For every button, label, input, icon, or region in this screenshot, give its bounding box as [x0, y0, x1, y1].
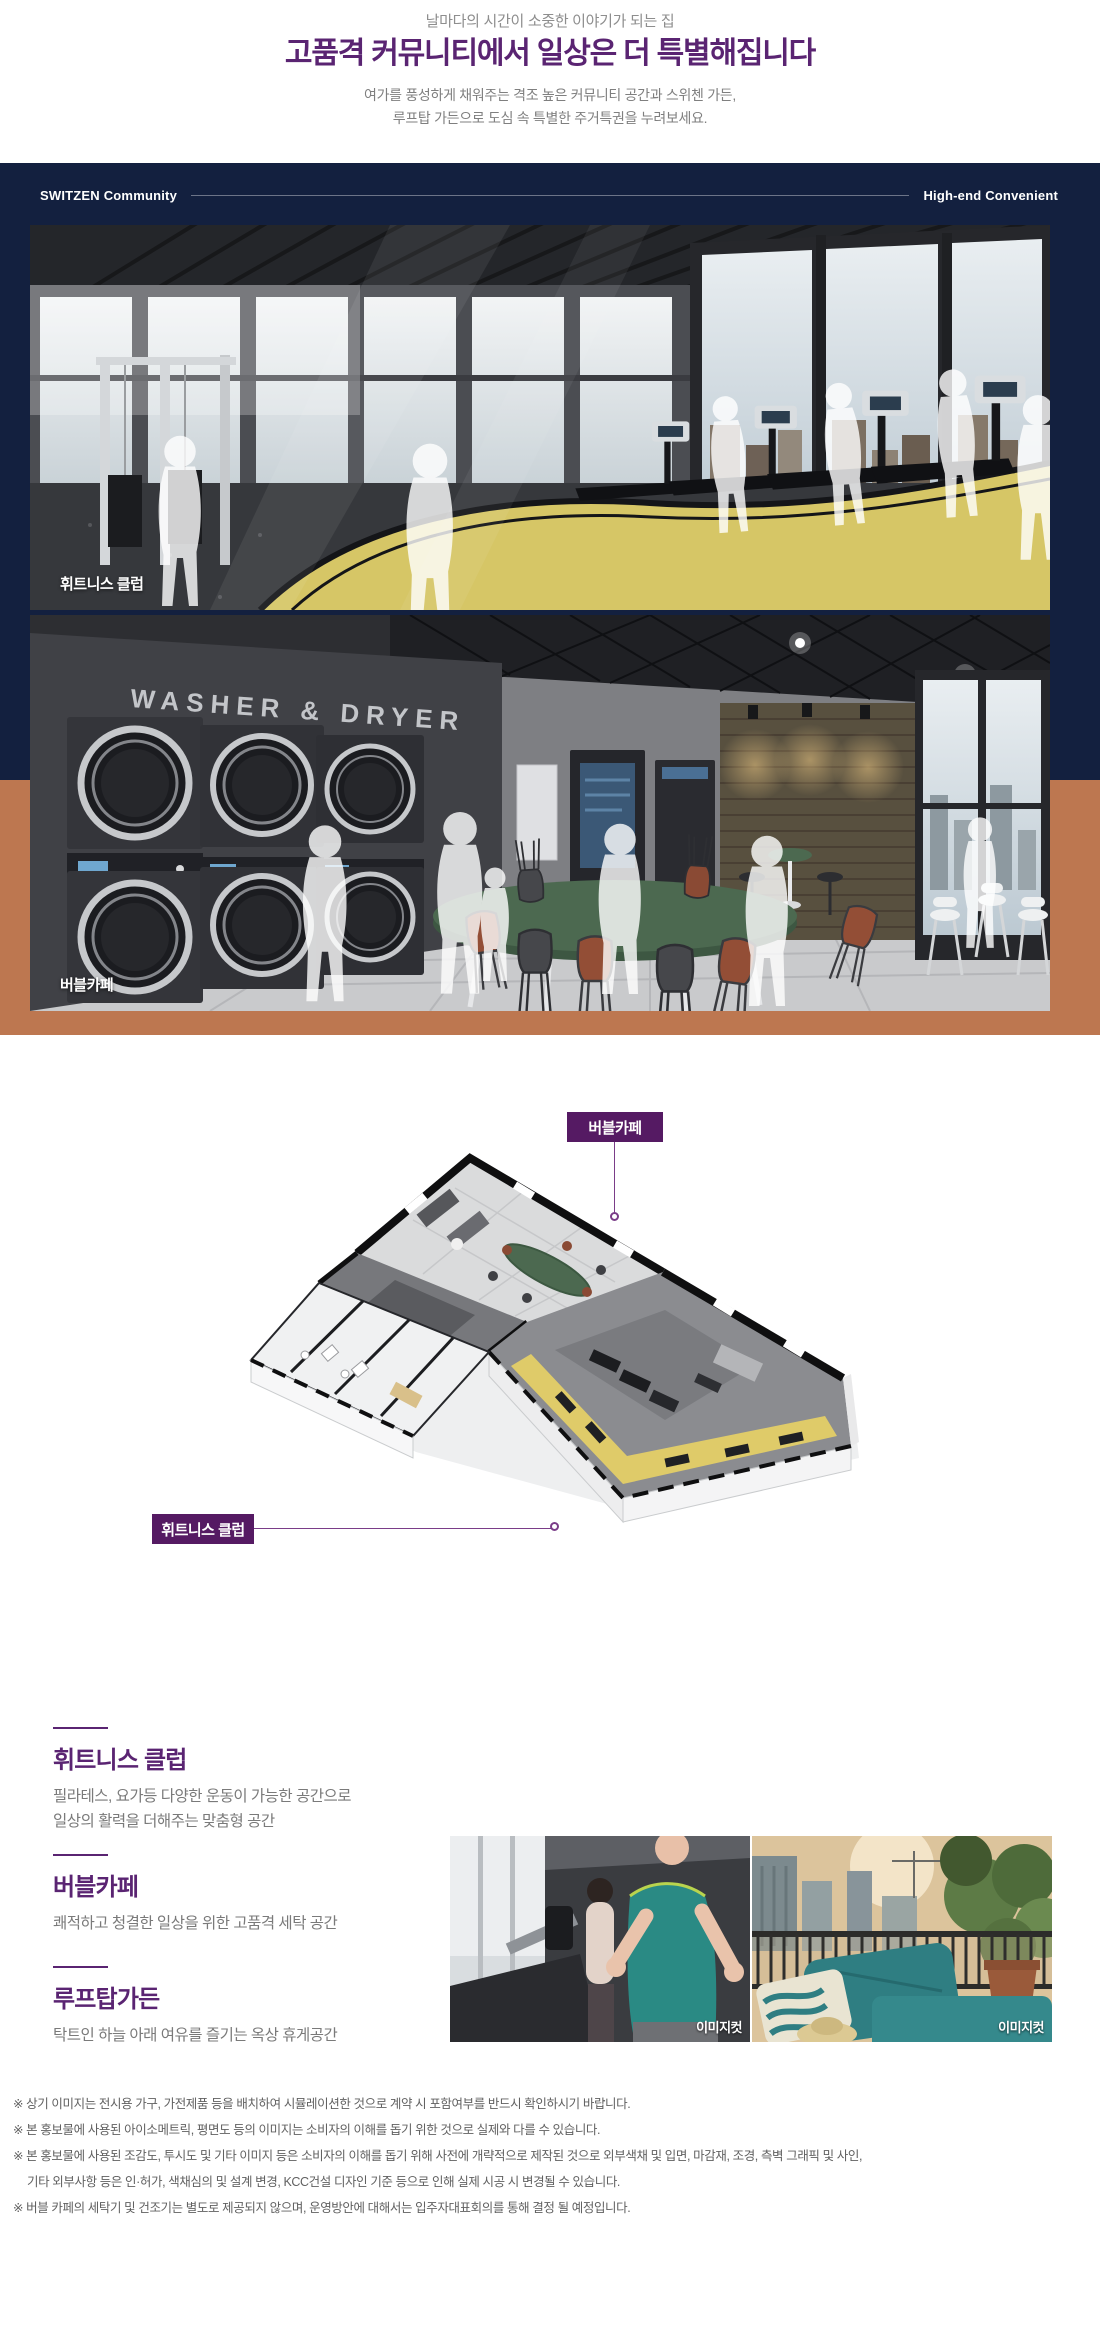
feature-title: 휘트니스 클럽: [53, 1740, 351, 1775]
rooftop-photo: 이미지컷: [752, 1836, 1052, 2042]
floorplan-tag-bubble-cafe: 버블카페: [567, 1112, 663, 1142]
feature-rule: [53, 1854, 108, 1856]
photo-label: 이미지컷: [696, 2017, 742, 2036]
footnote-line: ※ 본 홍보물에 사용된 조감도, 투시도 및 기타 이미지 등은 소비자의 이…: [13, 2143, 1091, 2169]
disclaimer-footnotes: ※ 상기 이미지는 전시용 가구, 가전제품 등을 배치하여 시뮬레이션한 것으…: [13, 2091, 1091, 2221]
fitness-render-caption: 휘트니스 클럽: [60, 573, 143, 594]
feature-description: 필라테스, 요가등 다양한 운동이 가능한 공간으로 일상의 활력을 더해주는 …: [53, 1784, 351, 1834]
subtitle-line-2: 루프탑 가든으로 도심 속 특별한 주거특권을 누려보세요.: [0, 107, 1100, 130]
laundry-render-caption: 버블카페: [60, 974, 113, 995]
footnote-line: ※ 버블 카페의 세탁기 및 건조기는 별도로 제공되지 않으며, 운영방안에 …: [13, 2195, 1091, 2221]
photo-label: 이미지컷: [998, 2017, 1044, 2036]
gym-photo-illustration: [450, 1836, 750, 2042]
header-divider-line: [191, 195, 909, 196]
feature-title: 버블카페: [53, 1867, 337, 1902]
community-section: SWITZEN Community High-end Convenient: [0, 163, 1100, 1035]
cafe-marker-dot: [610, 1212, 619, 1221]
feature-rooftop-garden: 루프탑가든 탁트인 하늘 아래 여유를 즐기는 옥상 휴게공간: [53, 1966, 337, 2048]
fitness-render-illustration: [30, 225, 1050, 610]
header-subtitle: 여가를 풍성하게 채워주는 격조 높은 커뮤니티 공간과 스위첸 가든, 루프탑…: [0, 84, 1100, 130]
feature-desc-line-2: 일상의 활력을 더해주는 맞춤형 공간: [53, 1809, 351, 1834]
community-left-label: SWITZEN Community: [40, 188, 177, 203]
isometric-floorplan: [195, 1150, 905, 1570]
laundry-render-illustration: WASHER & DRYER: [30, 615, 1050, 1011]
feature-rule: [53, 1727, 108, 1729]
feature-desc-line-1: 필라테스, 요가등 다양한 운동이 가능한 공간으로: [53, 1784, 351, 1809]
feature-description: 탁트인 하늘 아래 여유를 즐기는 옥상 휴게공간: [53, 2023, 337, 2048]
footnote-line: ※ 상기 이미지는 전시용 가구, 가전제품 등을 배치하여 시뮬레이션한 것으…: [13, 2091, 1091, 2117]
fitness-marker-dot: [550, 1522, 559, 1531]
community-right-label: High-end Convenient: [923, 188, 1058, 203]
feature-title: 루프탑가든: [53, 1979, 337, 2014]
promo-page: 날마다의 시간이 소중한 이야기가 되는 집 고품격 커뮤니티에서 일상은 더 …: [0, 0, 1100, 2349]
feature-bubble-cafe: 버블카페 쾌적하고 청결한 일상을 위한 고품격 세탁 공간: [53, 1854, 337, 1936]
feature-fitness-club: 휘트니스 클럽 필라테스, 요가등 다양한 운동이 가능한 공간으로 일상의 활…: [53, 1727, 351, 1834]
gym-photo: 이미지컷: [450, 1836, 750, 2042]
footnote-line: ※ 본 홍보물에 사용된 아이소메트릭, 평면도 등의 이미지는 소비자의 이해…: [13, 2117, 1091, 2143]
fitness-leader-line: [254, 1528, 554, 1529]
cafe-leader-line: [614, 1142, 615, 1214]
subtitle-line-1: 여가를 풍성하게 채워주는 격조 높은 커뮤니티 공간과 스위첸 가든,: [0, 84, 1100, 107]
fitness-club-render: 휘트니스 클럽: [30, 225, 1050, 610]
page-title: 고품격 커뮤니티에서 일상은 더 특별해집니다: [0, 28, 1100, 72]
bubble-cafe-render: WASHER & DRYER: [30, 615, 1050, 1011]
washer-machines: [67, 717, 424, 1003]
floorplan-tag-fitness-club: 휘트니스 클럽: [152, 1514, 254, 1544]
footnote-line-continuation: 기타 외부사항 등은 인·허가, 색채심의 및 설계 변경, KCC건설 디자인…: [13, 2169, 1091, 2195]
feature-rule: [53, 1966, 108, 1968]
community-header-row: SWITZEN Community High-end Convenient: [40, 188, 1058, 203]
feature-description: 쾌적하고 청결한 일상을 위한 고품격 세탁 공간: [53, 1911, 337, 1936]
rooftop-photo-illustration: [752, 1836, 1052, 2042]
